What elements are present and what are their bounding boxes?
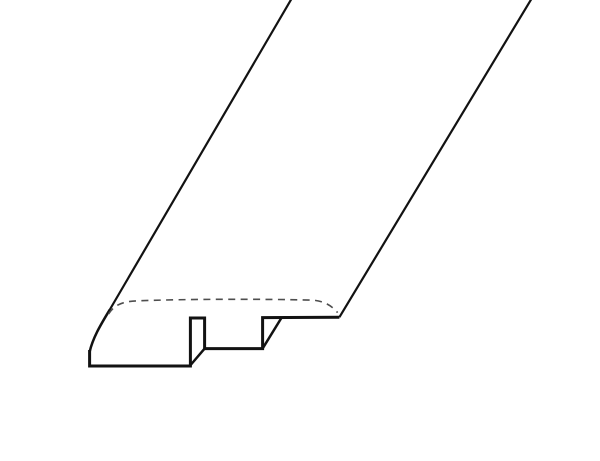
plank-right-long-edge: [339, 0, 532, 317]
bullnose-curve-edge: [90, 310, 110, 352]
drawing-canvas: [0, 0, 600, 461]
groove-wall-depth-edge: [263, 318, 282, 349]
molding-drawing-svg: [0, 0, 600, 461]
front-profile-outline: [90, 317, 340, 366]
roundover-hidden-edge: [109, 299, 338, 314]
tongue-base-depth-edge: [191, 349, 205, 365]
plank-left-long-edge: [109, 0, 292, 311]
